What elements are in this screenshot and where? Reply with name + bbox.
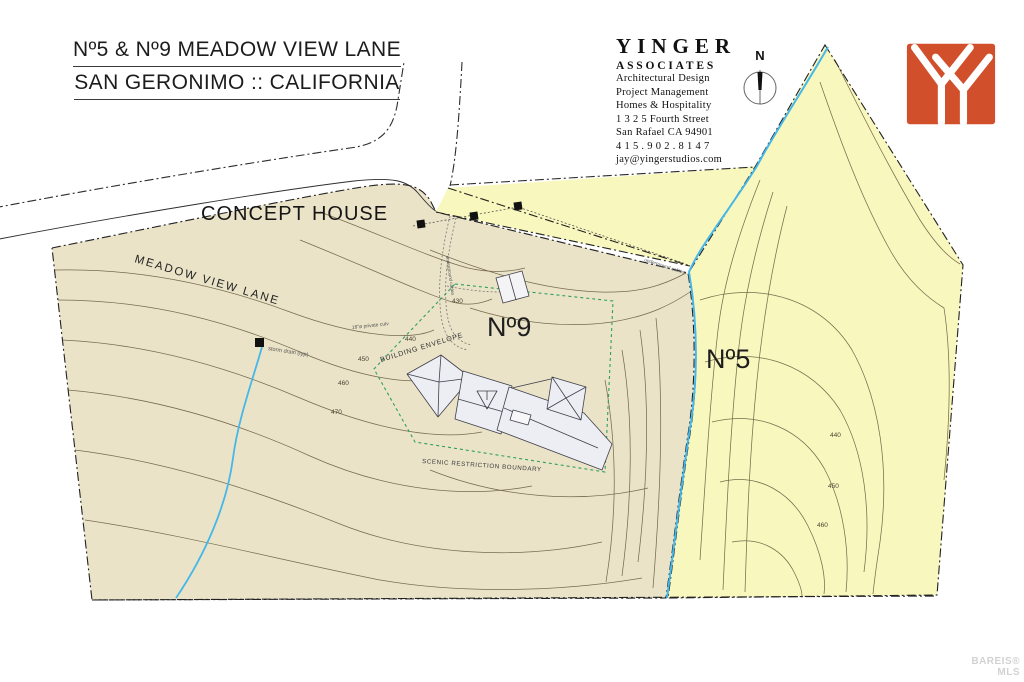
svg-text:440: 440 <box>830 432 841 439</box>
road-edge-right-dashdot <box>450 62 462 186</box>
firm-line: Homes & Hospitality <box>616 99 736 113</box>
firm-line: Architectural Design <box>616 72 736 86</box>
site-plan-page: Nº9 Nº5 MEADOW VIEW LANE CONCEPT HOUSE B… <box>0 0 1024 682</box>
site-map: Nº9 Nº5 MEADOW VIEW LANE CONCEPT HOUSE B… <box>0 0 1024 682</box>
utility-box <box>469 211 478 220</box>
firm-line: 4 1 5 . 9 0 2 . 8 1 4 7 <box>616 140 736 154</box>
north-arrow: N <box>738 46 782 116</box>
svg-text:450: 450 <box>358 356 369 363</box>
watermark: BAREIS® MLS <box>971 656 1020 678</box>
svg-text:470: 470 <box>331 409 342 416</box>
title-line-2: SAN GERONIMO :: CALIFORNIA <box>74 67 399 100</box>
watermark-line-2: MLS <box>971 667 1020 678</box>
watermark-line-1: BAREIS® <box>971 656 1020 667</box>
firm-subname: ASSOCIATES <box>616 60 736 72</box>
utility-box <box>513 201 522 210</box>
north-label: N <box>755 48 764 63</box>
svg-text:460: 460 <box>817 522 828 529</box>
firm-line: jay@yingerstudios.com <box>616 153 736 167</box>
svg-text:450: 450 <box>828 483 839 490</box>
firm-name: YINGER <box>616 34 736 59</box>
firm-line: 1 3 2 5 Fourth Street <box>616 113 736 127</box>
firm-line: Project Management <box>616 86 736 100</box>
utility-box <box>416 219 425 228</box>
svg-text:440: 440 <box>405 336 416 343</box>
compass-needle <box>758 72 763 90</box>
parcel9-label: Nº9 <box>487 312 531 342</box>
svg-text:430: 430 <box>452 298 463 305</box>
concept-house-label: CONCEPT HOUSE <box>201 203 388 225</box>
firm-line: San Rafael CA 94901 <box>616 126 736 140</box>
parcel5-label: Nº5 <box>706 344 750 374</box>
site-map-svg: Nº9 Nº5 MEADOW VIEW LANE CONCEPT HOUSE B… <box>0 0 1024 682</box>
page-title: Nº5 & Nº9 MEADOW VIEW LANE SAN GERONIMO … <box>72 34 402 100</box>
firm-logo <box>903 38 999 130</box>
firm-block: YINGER ASSOCIATES Architectural Design P… <box>616 34 736 167</box>
svg-text:460: 460 <box>338 380 349 387</box>
title-line-1: Nº5 & Nº9 MEADOW VIEW LANE <box>73 34 401 67</box>
storm-drain-box <box>255 338 264 347</box>
